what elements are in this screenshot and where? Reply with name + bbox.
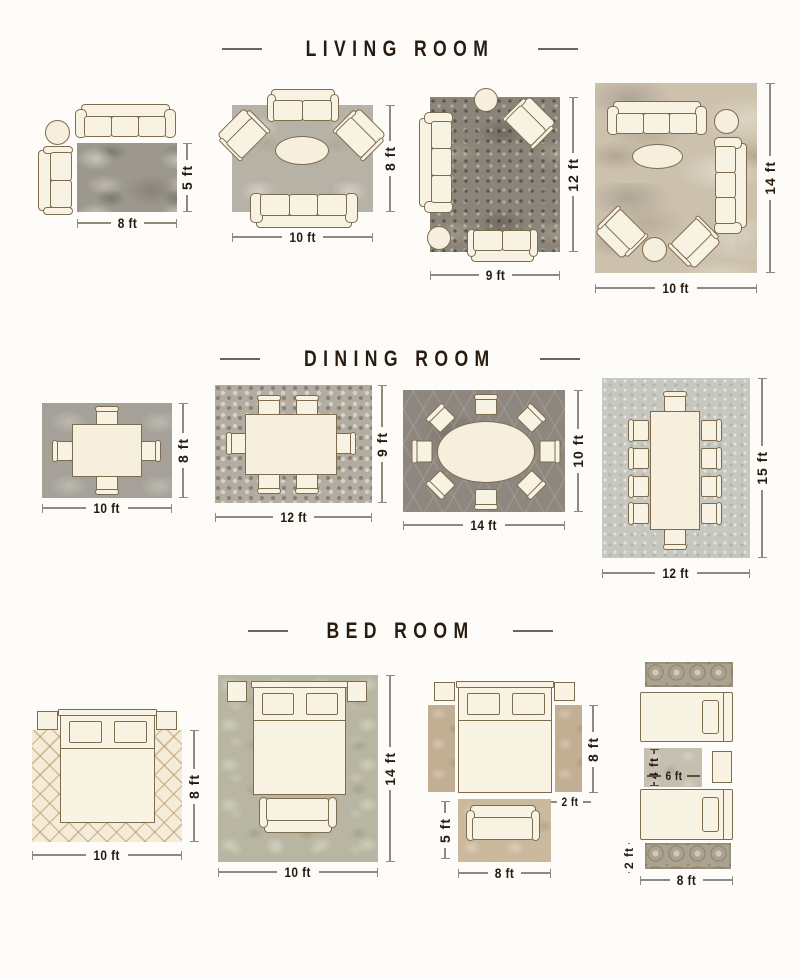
dim-tick (732, 876, 733, 885)
pillow (702, 700, 719, 735)
rug-width-dimension: 6 ft (647, 768, 700, 784)
dimension-label: 6 ft (662, 769, 684, 783)
runner-rug (645, 843, 731, 869)
nightstand-icon (712, 751, 732, 783)
headboard-line (723, 692, 724, 742)
dim-tick (650, 785, 659, 786)
dim-line (647, 775, 661, 776)
runner-rug (645, 662, 733, 687)
dim-line (687, 775, 701, 776)
dimension-label: 8 ft (672, 872, 700, 888)
dim-line (703, 879, 732, 880)
headboard-line (723, 789, 724, 840)
dimension-label: 2 ft (622, 844, 636, 872)
runner-height-dimension: 2 ft (621, 843, 637, 872)
row-width-dimension: 8 ft (640, 872, 733, 888)
twin-bed-icon (640, 789, 733, 840)
twin-bed-icon (640, 692, 733, 742)
pillow (702, 797, 719, 832)
bed-room-layout-4: 4 ft 6 ft 2 ft 8 ft (0, 0, 800, 978)
dim-line (653, 750, 654, 753)
rug-size-guide-infographic: LIVING ROOM 8 ft 5 ft (0, 0, 800, 978)
dim-line (641, 879, 670, 880)
